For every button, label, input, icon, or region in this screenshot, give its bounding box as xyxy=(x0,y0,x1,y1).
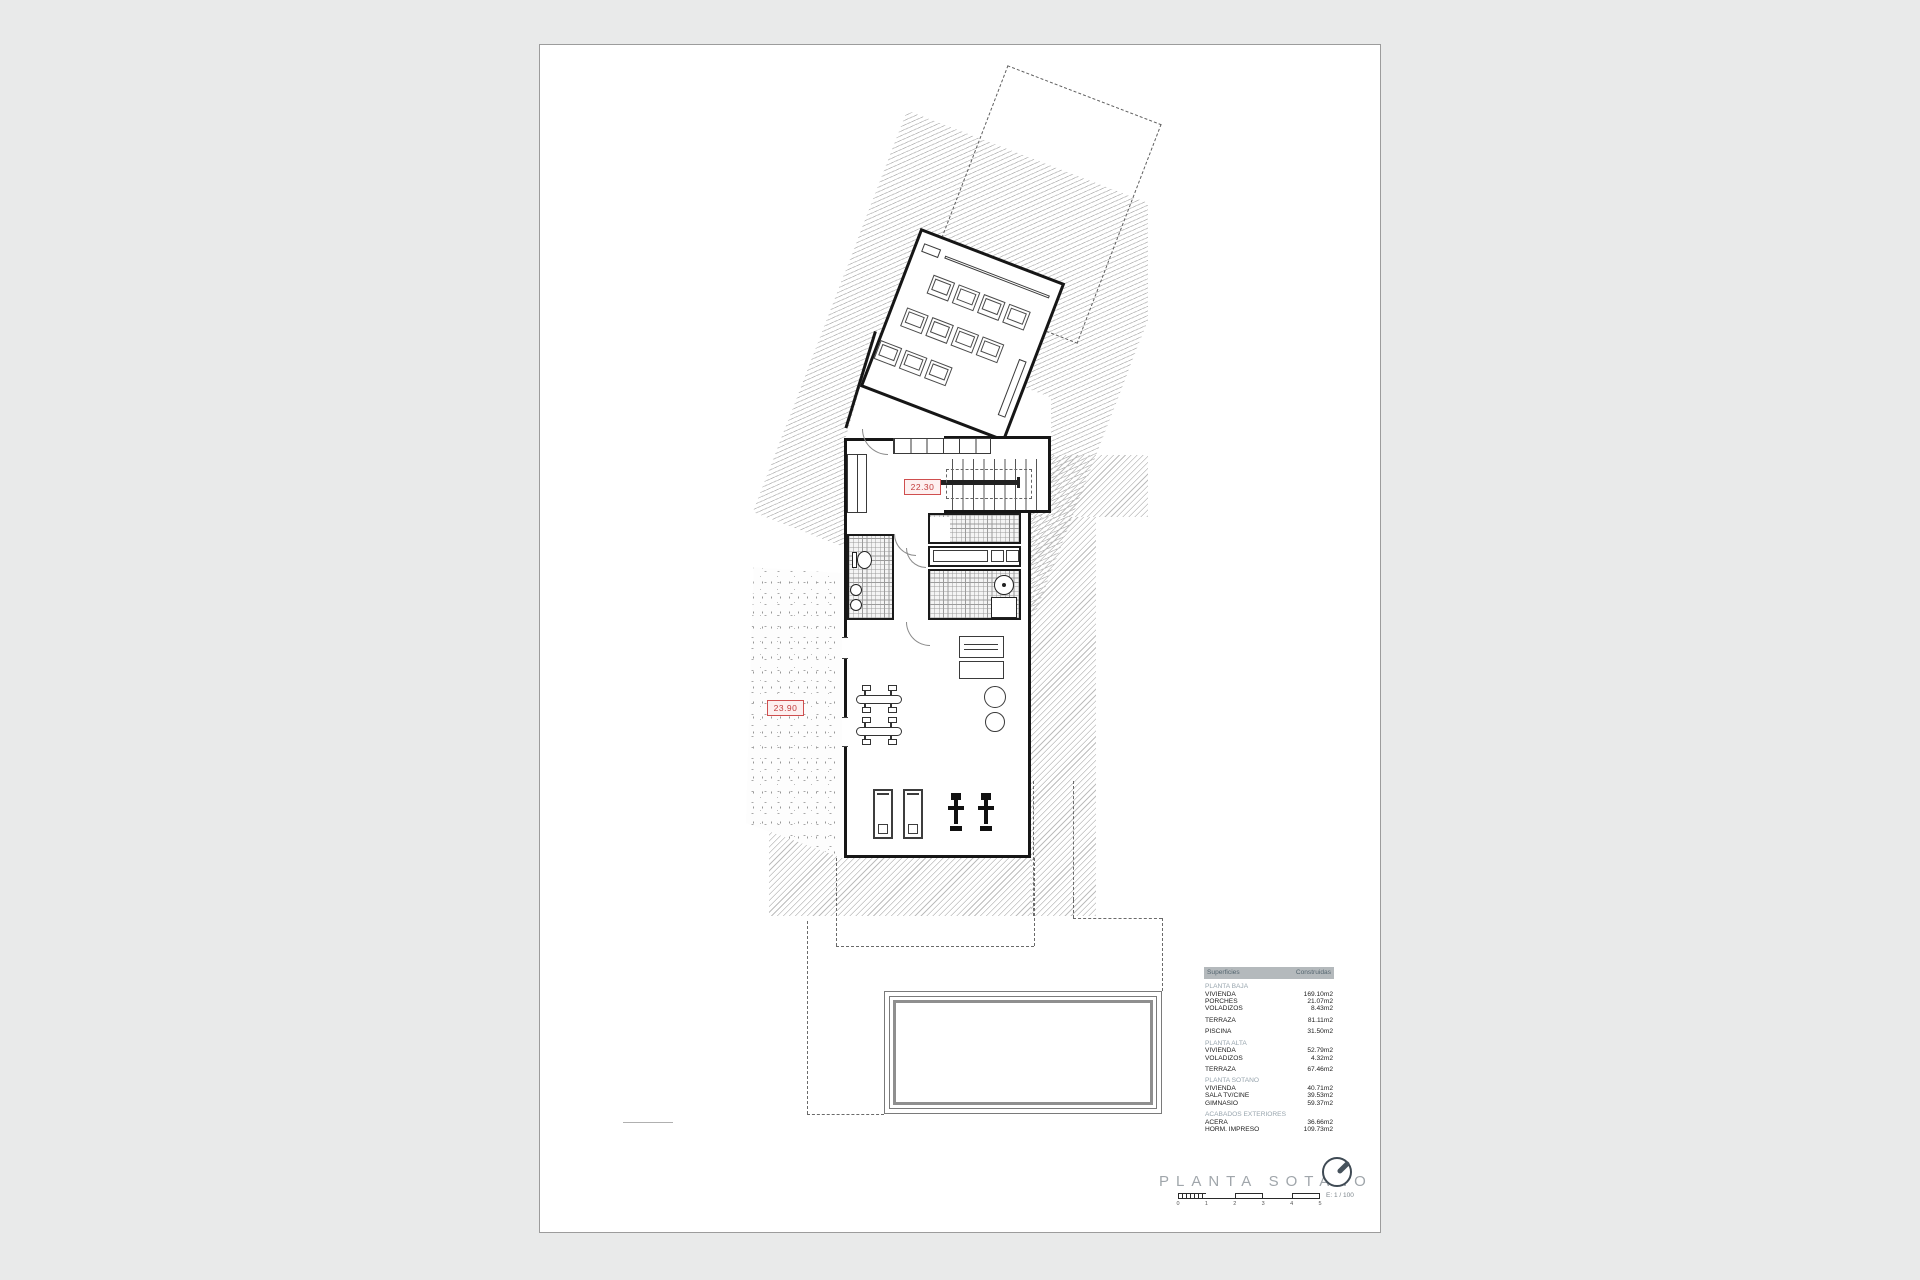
cinema-seat xyxy=(976,336,1005,363)
cinema-seat xyxy=(925,317,954,344)
surfaces-row-label: TERRAZA xyxy=(1205,1066,1236,1073)
dashed-site-line xyxy=(836,858,837,946)
surfaces-row-label: VIVIENDA xyxy=(1205,1085,1236,1092)
cinema-seat xyxy=(977,294,1006,321)
gym-window-top xyxy=(842,637,848,659)
scale-tick-label: 3 xyxy=(1259,1201,1267,1207)
north-arrow-icon xyxy=(1322,1157,1352,1187)
cinema-seat xyxy=(899,350,928,377)
surfaces-table-header: Superficies Construidas xyxy=(1204,967,1334,979)
dashed-site-line xyxy=(807,921,808,1114)
surfaces-group: TERRAZA81.11m2 xyxy=(1204,1017,1334,1024)
surfaces-group: PLANTA ALTAVIVIENDA52.79m2VOLADIZOS4.32m… xyxy=(1204,1040,1334,1062)
cinema-seat xyxy=(900,307,929,334)
gym-mat-top xyxy=(959,636,1004,658)
surfaces-row: PISCINA31.50m2 xyxy=(1205,1028,1333,1035)
bathroom-left xyxy=(847,534,894,620)
ground-hatch-right xyxy=(1031,517,1096,916)
surfaces-row: ACERA36.66m2 xyxy=(1205,1119,1333,1126)
exercise-ball-top xyxy=(984,686,1006,708)
cinema-seat xyxy=(924,359,953,386)
level-label-terrace: 23.90 xyxy=(767,700,804,716)
dashed-site-line xyxy=(1073,918,1162,919)
scale-tick-label: 4 xyxy=(1288,1201,1296,1207)
scale-bar-segment xyxy=(1292,1193,1320,1199)
surfaces-row-value: 52.79m2 xyxy=(1307,1047,1333,1054)
dashed-site-line xyxy=(1034,858,1035,946)
surfaces-col-values: Construidas xyxy=(1296,967,1331,979)
surfaces-group: PISCINA31.50m2 xyxy=(1204,1028,1334,1035)
scale-tick-label: 5 xyxy=(1316,1201,1324,1207)
surfaces-group: PLANTA SOTANOVIVIENDA40.71m2SALA TV/CINE… xyxy=(1204,1077,1334,1107)
surfaces-row: VIVIENDA40.71m2 xyxy=(1205,1085,1333,1092)
cinema-step xyxy=(921,243,941,258)
cinema-seat xyxy=(952,284,981,311)
vanity-sink-left xyxy=(991,550,1004,562)
bidet-icon xyxy=(850,599,862,611)
stair-dashed-flight xyxy=(946,469,1032,499)
surfaces-row: SALA TV/CINE39.53m2 xyxy=(1205,1092,1333,1099)
surfaces-row: VIVIENDA169.10m2 xyxy=(1205,991,1333,998)
scale-bar: 012345 xyxy=(1178,1190,1320,1210)
cinema-seat xyxy=(874,340,903,367)
surfaces-row-label: VIVIENDA xyxy=(1205,991,1236,998)
surfaces-row-label: HORM. IMPRESO xyxy=(1205,1126,1259,1133)
signature-line xyxy=(623,1122,673,1123)
surfaces-row-value: 40.71m2 xyxy=(1307,1085,1333,1092)
pool-water-edge xyxy=(893,1000,1153,1105)
door-gap xyxy=(930,517,950,542)
surfaces-section-title: PLANTA SOTANO xyxy=(1205,1077,1333,1085)
treadmill-left xyxy=(873,789,893,839)
surfaces-row-label: PISCINA xyxy=(1205,1028,1231,1035)
surfaces-row-value: 31.50m2 xyxy=(1307,1028,1333,1035)
surfaces-col-label: Superficies xyxy=(1207,967,1240,979)
exercise-ball-bottom xyxy=(985,712,1005,732)
dashed-site-line xyxy=(836,946,1034,947)
cinema-seat xyxy=(950,327,979,354)
surfaces-section-title: PLANTA BAJA xyxy=(1205,983,1333,991)
surfaces-section-title: PLANTA ALTA xyxy=(1205,1040,1333,1048)
vanity-counter xyxy=(933,550,988,562)
surfaces-row: TERRAZA81.11m2 xyxy=(1205,1017,1333,1024)
surfaces-row: PORCHES21.07m2 xyxy=(1205,998,1333,1005)
scale-bar-segment xyxy=(1235,1193,1263,1199)
surfaces-row-label: TERRAZA xyxy=(1205,1017,1236,1024)
surfaces-row-label: VOLADIZOS xyxy=(1205,1005,1243,1012)
weight-bench-top xyxy=(856,685,902,713)
surfaces-row: VIVIENDA52.79m2 xyxy=(1205,1047,1333,1054)
treadmill-right xyxy=(903,789,923,839)
gym-mat-bottom xyxy=(959,661,1004,679)
ground-hatch-bottom xyxy=(837,858,1031,916)
level-label-stairs: 22.30 xyxy=(904,479,941,495)
surfaces-table: Superficies Construidas PLANTA BAJAVIVIE… xyxy=(1204,967,1334,1134)
surfaces-row-label: GIMNASIO xyxy=(1205,1100,1238,1107)
cinema-seat xyxy=(927,275,956,302)
shower-room-top xyxy=(928,513,1021,544)
surfaces-group: TERRAZA67.46m2 xyxy=(1204,1066,1334,1073)
storage-shelf-row xyxy=(893,438,991,454)
surfaces-row: TERRAZA67.46m2 xyxy=(1205,1066,1333,1073)
scale-bar-zigzag xyxy=(1178,1193,1206,1199)
surfaces-row-value: 8.43m2 xyxy=(1311,1005,1333,1012)
vanity-room xyxy=(928,546,1021,567)
closet xyxy=(847,454,867,513)
weight-bench-bottom xyxy=(856,717,902,745)
surfaces-row-value: 39.53m2 xyxy=(1307,1092,1333,1099)
surfaces-row: VOLADIZOS4.32m2 xyxy=(1205,1055,1333,1062)
vanity-sink-right xyxy=(1006,550,1019,562)
surfaces-row-value: 67.46m2 xyxy=(1307,1066,1333,1073)
surfaces-row-label: ACERA xyxy=(1205,1119,1228,1126)
surfaces-row-value: 4.32m2 xyxy=(1311,1055,1333,1062)
surfaces-row-label: SALA TV/CINE xyxy=(1205,1092,1249,1099)
dashed-site-line xyxy=(1162,918,1163,991)
dashed-site-line xyxy=(1073,900,1074,918)
surfaces-group: ACABADOS EXTERIORESACERA36.66m2HORM. IMP… xyxy=(1204,1111,1334,1133)
basin-icon xyxy=(850,584,862,596)
surfaces-row-value: 59.37m2 xyxy=(1307,1100,1333,1107)
dashed-hatch-line xyxy=(1073,781,1074,900)
bathroom-right xyxy=(928,569,1021,620)
surfaces-row-value: 109.73m2 xyxy=(1304,1126,1333,1133)
surfaces-table-body: PLANTA BAJAVIVIENDA169.10m2PORCHES21.07m… xyxy=(1204,983,1334,1134)
exercise-machine-left xyxy=(948,793,964,835)
scale-tick-label: 2 xyxy=(1231,1201,1239,1207)
surfaces-row-value: 21.07m2 xyxy=(1307,998,1333,1005)
cinema-seat xyxy=(1002,304,1031,331)
surfaces-row-value: 81.11m2 xyxy=(1308,1017,1333,1024)
north-needle xyxy=(1336,1160,1350,1174)
surfaces-section-title: ACABADOS EXTERIORES xyxy=(1205,1111,1333,1119)
toilet-bowl-icon xyxy=(857,551,872,569)
surfaces-group: PLANTA BAJAVIVIENDA169.10m2PORCHES21.07m… xyxy=(1204,983,1334,1013)
exercise-machine-right xyxy=(978,793,994,835)
dashed-site-line xyxy=(807,1114,884,1115)
surfaces-row-label: VIVIENDA xyxy=(1205,1047,1236,1054)
surfaces-row-label: PORCHES xyxy=(1205,998,1238,1005)
surfaces-row: VOLADIZOS8.43m2 xyxy=(1205,1005,1333,1012)
swimming-pool xyxy=(884,991,1162,1114)
surfaces-row: GIMNASIO59.37m2 xyxy=(1205,1100,1333,1107)
scale-note: E: 1 / 100 xyxy=(1326,1192,1354,1199)
scale-tick-label: 1 xyxy=(1202,1201,1210,1207)
surfaces-row: HORM. IMPRESO109.73m2 xyxy=(1205,1126,1333,1133)
shower-drain-icon xyxy=(1002,583,1006,587)
scale-tick-label: 0 xyxy=(1174,1201,1182,1207)
shower-tray xyxy=(991,597,1017,618)
surfaces-row-value: 169.10m2 xyxy=(1304,991,1333,998)
drawing-sheet: 22.30 23.90 Superficies Construidas PLAN… xyxy=(539,44,1381,1233)
gym-window-bottom xyxy=(842,717,848,747)
surfaces-row-value: 36.66m2 xyxy=(1307,1119,1333,1126)
dashed-hatch-line xyxy=(1033,781,1034,916)
surfaces-row-label: VOLADIZOS xyxy=(1205,1055,1243,1062)
